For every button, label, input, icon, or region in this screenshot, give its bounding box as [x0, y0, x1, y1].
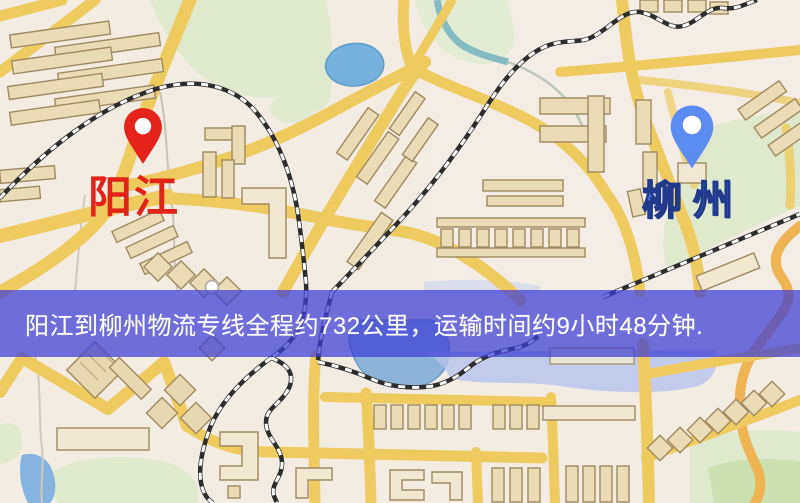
destination-city-label: 柳州	[642, 181, 744, 221]
route-info-text: 阳江到柳州物流专线全程约732公里，运输时间约9小时48分钟.	[0, 306, 703, 341]
map-background	[0, 0, 800, 503]
route-info-banner: 阳江到柳州物流专线全程约732公里，运输时间约9小时48分钟.	[0, 290, 800, 357]
origin-city-label: 阳江	[88, 176, 180, 220]
logistics-route-map: 阳江 柳州 阳江到柳州物流专线全程约732公里，运输时间约9小时48分钟.	[0, 0, 800, 503]
